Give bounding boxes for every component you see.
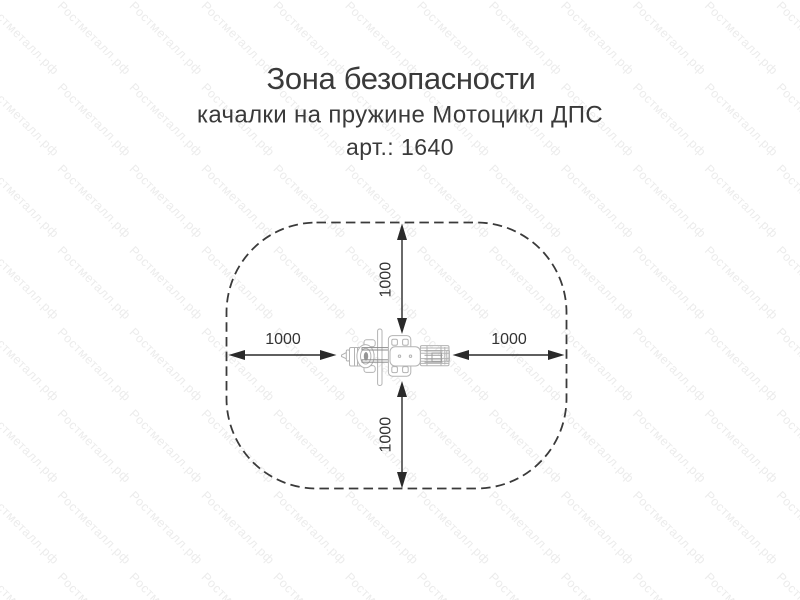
svg-text:Ростметалл.рф: Ростметалл.рф — [270, 407, 349, 486]
svg-text:Ростметалл.рф: Ростметалл.рф — [630, 80, 709, 159]
svg-text:Ростметалл.рф: Ростметалл.рф — [414, 162, 493, 241]
svg-text:Ростметалл.рф: Ростметалл.рф — [414, 488, 493, 567]
svg-text:Ростметалл.рф: Ростметалл.рф — [127, 162, 206, 241]
svg-text:Ростметалл.рф: Ростметалл.рф — [127, 407, 206, 486]
svg-text:Ростметалл.рф: Ростметалл.рф — [270, 488, 349, 567]
svg-text:Ростметалл.рф: Ростметалл.рф — [199, 570, 278, 600]
svg-text:Ростметалл.рф: Ростметалл.рф — [630, 488, 709, 567]
svg-text:Ростметалл.рф: Ростметалл.рф — [55, 325, 134, 404]
svg-text:Ростметалл.рф: Ростметалл.рф — [55, 570, 134, 600]
svg-text:Ростметалл.рф: Ростметалл.рф — [127, 570, 206, 600]
svg-text:1000: 1000 — [378, 417, 395, 453]
svg-text:Ростметалл.рф: Ростметалл.рф — [630, 244, 709, 323]
svg-text:Ростметалл.рф: Ростметалл.рф — [199, 162, 278, 241]
svg-text:Ростметалл.рф: Ростметалл.рф — [127, 0, 206, 78]
svg-text:1000: 1000 — [378, 262, 395, 298]
svg-text:Ростметалл.рф: Ростметалл.рф — [702, 80, 781, 159]
svg-text:Ростметалл.рф: Ростметалл.рф — [558, 488, 637, 567]
svg-text:Ростметалл.рф: Ростметалл.рф — [630, 325, 709, 404]
svg-text:Ростметалл.рф: Ростметалл.рф — [630, 0, 709, 78]
svg-text:Ростметалл.рф: Ростметалл.рф — [0, 570, 62, 600]
svg-text:Ростметалл.рф: Ростметалл.рф — [558, 162, 637, 241]
svg-text:качалки на пружине Мотоцикл ДП: качалки на пружине Мотоцикл ДПС — [197, 102, 603, 129]
svg-text:Ростметалл.рф: Ростметалл.рф — [127, 325, 206, 404]
svg-text:Ростметалл.рф: Ростметалл.рф — [702, 488, 781, 567]
svg-text:Ростметалл.рф: Ростметалл.рф — [0, 244, 62, 323]
svg-text:Ростметалл.рф: Ростметалл.рф — [0, 80, 62, 159]
svg-text:Ростметалл.рф: Ростметалл.рф — [0, 162, 62, 241]
svg-text:Ростметалл.рф: Ростметалл.рф — [127, 244, 206, 323]
svg-text:Ростметалл.рф: Ростметалл.рф — [558, 0, 637, 78]
svg-text:Ростметалл.рф: Ростметалл.рф — [630, 407, 709, 486]
svg-text:Ростметалл.рф: Ростметалл.рф — [270, 570, 349, 600]
svg-text:Ростметалл.рф: Ростметалл.рф — [0, 407, 62, 486]
svg-text:Ростметалл.рф: Ростметалл.рф — [55, 80, 134, 159]
svg-text:Ростметалл.рф: Ростметалл.рф — [55, 162, 134, 241]
svg-text:арт.: 1640: арт.: 1640 — [346, 134, 454, 160]
svg-text:Ростметалл.рф: Ростметалл.рф — [486, 162, 565, 241]
svg-text:Ростметалл.рф: Ростметалл.рф — [702, 325, 781, 404]
svg-text:1000: 1000 — [265, 331, 301, 348]
svg-text:Ростметалл.рф: Ростметалл.рф — [558, 325, 637, 404]
svg-text:Ростметалл.рф: Ростметалл.рф — [0, 0, 62, 78]
svg-text:Ростметалл.рф: Ростметалл.рф — [558, 244, 637, 323]
svg-text:Ростметалл.рф: Ростметалл.рф — [630, 162, 709, 241]
svg-text:Ростметалл.рф: Ростметалл.рф — [55, 244, 134, 323]
svg-text:Ростметалл.рф: Ростметалл.рф — [486, 570, 565, 600]
svg-text:Ростметалл.рф: Ростметалл.рф — [486, 244, 565, 323]
svg-text:Ростметалл.рф: Ростметалл.рф — [702, 0, 781, 78]
svg-text:Ростметалл.рф: Ростметалл.рф — [199, 488, 278, 567]
svg-text:Ростметалл.рф: Ростметалл.рф — [127, 80, 206, 159]
svg-text:Ростметалл.рф: Ростметалл.рф — [414, 244, 493, 323]
svg-text:Ростметалл.рф: Ростметалл.рф — [55, 488, 134, 567]
svg-text:Ростметалл.рф: Ростметалл.рф — [702, 570, 781, 600]
svg-text:Ростметалл.рф: Ростметалл.рф — [342, 570, 421, 600]
svg-text:Ростметалл.рф: Ростметалл.рф — [702, 407, 781, 486]
svg-text:Ростметалл.рф: Ростметалл.рф — [0, 488, 62, 567]
svg-text:Ростметалл.рф: Ростметалл.рф — [342, 488, 421, 567]
svg-text:Ростметалл.рф: Ростметалл.рф — [0, 325, 62, 404]
svg-text:Зона безопасности: Зона безопасности — [267, 61, 536, 96]
svg-text:Ростметалл.рф: Ростметалл.рф — [199, 244, 278, 323]
svg-text:Ростметалл.рф: Ростметалл.рф — [270, 244, 349, 323]
svg-text:1000: 1000 — [491, 331, 527, 348]
svg-text:Ростметалл.рф: Ростметалл.рф — [702, 162, 781, 241]
svg-text:Ростметалл.рф: Ростметалл.рф — [558, 570, 637, 600]
svg-text:Ростметалл.рф: Ростметалл.рф — [414, 325, 493, 404]
svg-text:Ростметалл.рф: Ростметалл.рф — [342, 162, 421, 241]
svg-text:Ростметалл.рф: Ростметалл.рф — [127, 488, 206, 567]
svg-text:Ростметалл.рф: Ростметалл.рф — [414, 407, 493, 486]
svg-text:Ростметалл.рф: Ростметалл.рф — [702, 244, 781, 323]
svg-text:Ростметалл.рф: Ростметалл.рф — [774, 570, 800, 600]
svg-text:Ростметалл.рф: Ростметалл.рф — [486, 488, 565, 567]
svg-text:Ростметалл.рф: Ростметалл.рф — [199, 407, 278, 486]
svg-text:Ростметалл.рф: Ростметалл.рф — [558, 407, 637, 486]
svg-text:Ростметалл.рф: Ростметалл.рф — [55, 407, 134, 486]
svg-text:Ростметалл.рф: Ростметалл.рф — [630, 570, 709, 600]
svg-text:Ростметалл.рф: Ростметалл.рф — [55, 0, 134, 78]
svg-text:Ростметалл.рф: Ростметалл.рф — [414, 570, 493, 600]
